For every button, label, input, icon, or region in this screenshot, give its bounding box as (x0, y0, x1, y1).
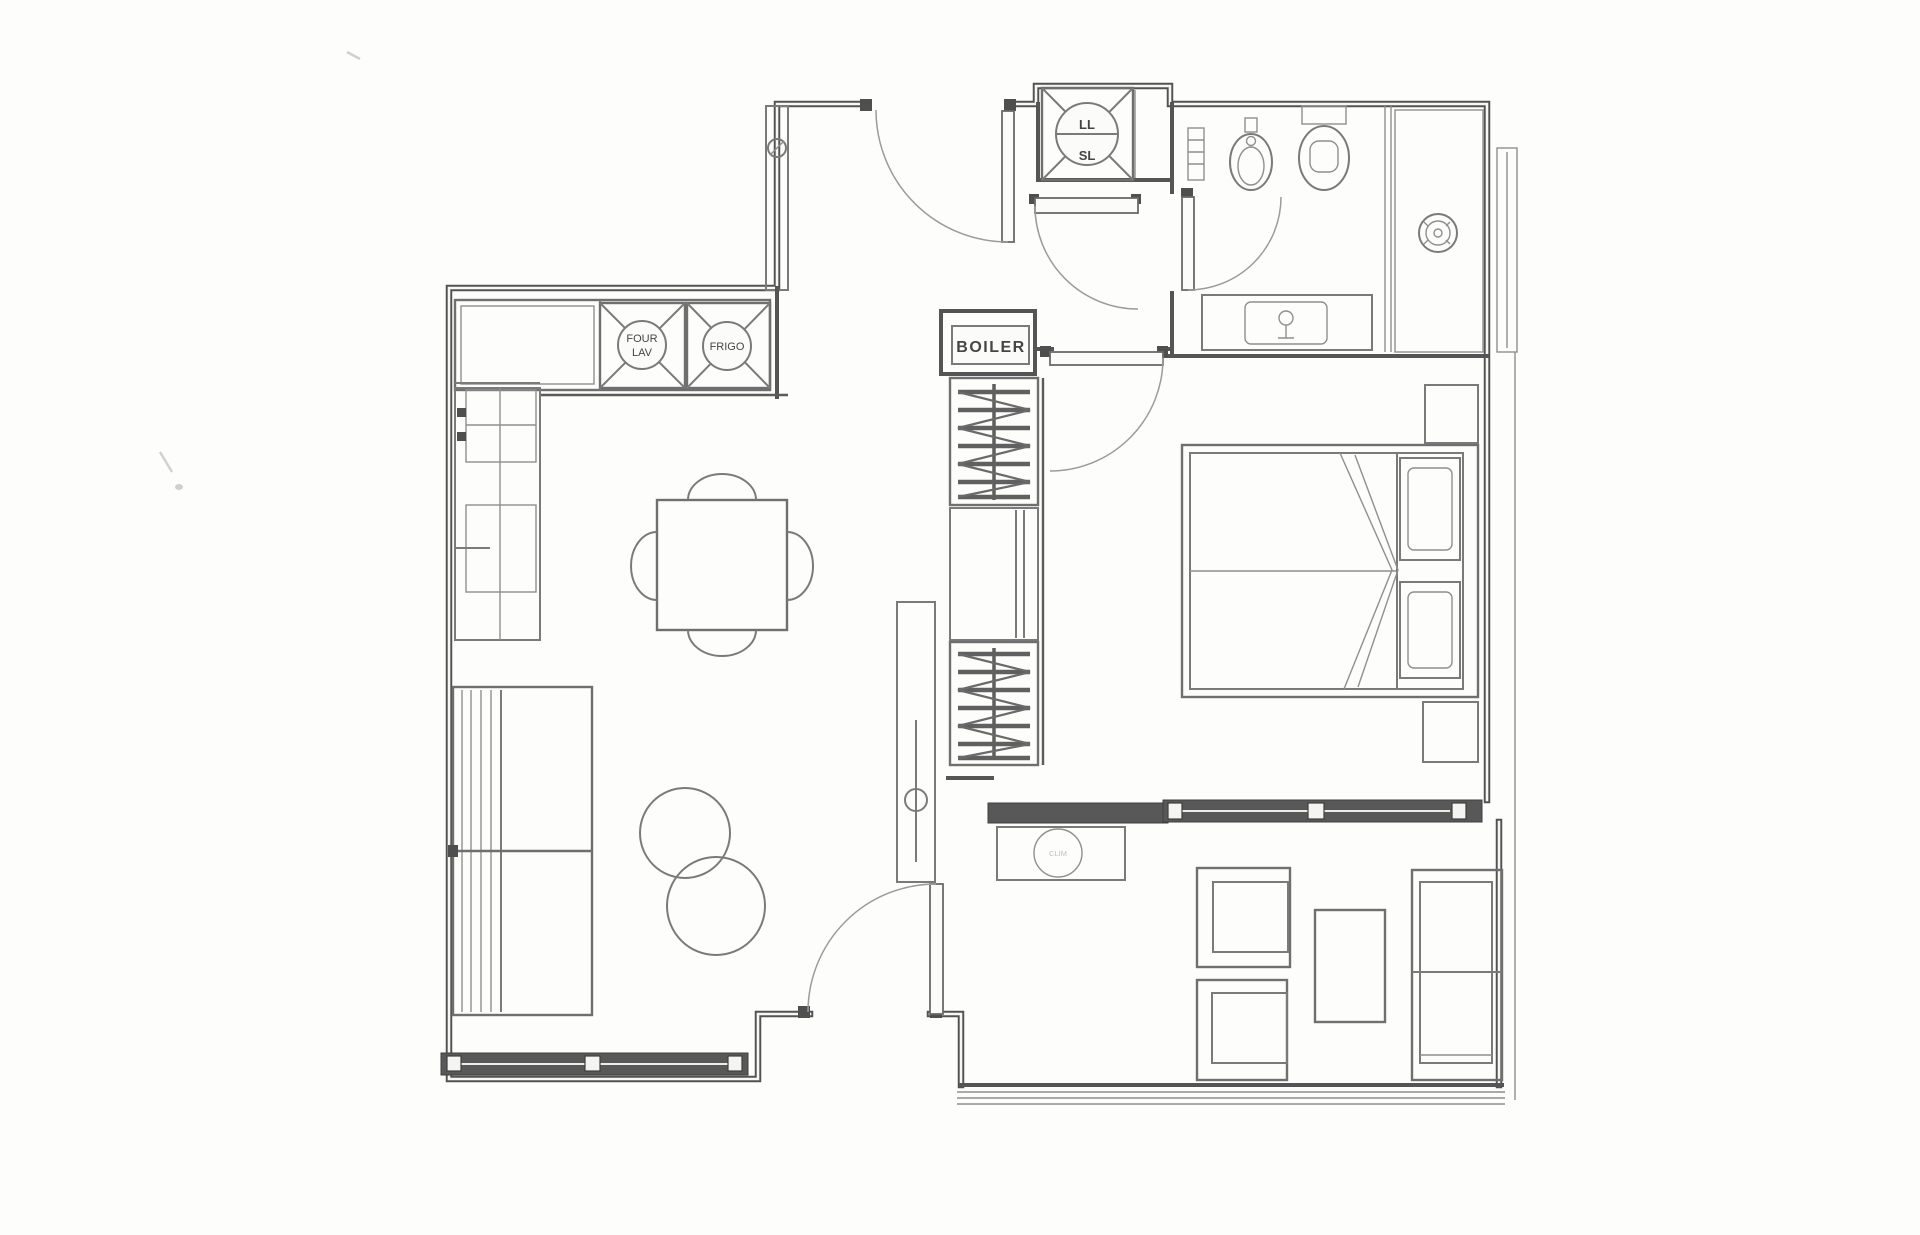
dining-table (657, 500, 787, 630)
dining-chair-bottom (688, 630, 756, 656)
floorplan-scan-page: FOUR LAV FRIGO (0, 0, 1920, 1235)
boiler-closet: BOILER (941, 311, 1035, 374)
living-room-window (441, 1053, 748, 1075)
sofa (448, 687, 592, 1015)
toilet (1299, 106, 1349, 190)
boiler-label: BOILER (956, 339, 1025, 356)
nightstand-bottom (1423, 702, 1478, 762)
fridge-unit: FRIGO (687, 303, 770, 388)
wardrobe-top (950, 378, 1038, 505)
kitchen-sink (457, 390, 536, 462)
terrace-lounger (1412, 870, 1502, 1080)
kitchen-side-counter (455, 383, 540, 640)
shower (1395, 110, 1483, 352)
bathroom-door (1181, 188, 1281, 290)
dining-chair-left (631, 532, 657, 600)
bedroom-door (1040, 346, 1168, 471)
exterior-walls (449, 86, 1499, 1085)
towel-radiator (1188, 128, 1204, 180)
wardrobe-bottom (950, 642, 1038, 765)
coffee-table-round-1 (640, 788, 730, 878)
washer-dryer-unit: LL SL (1042, 88, 1133, 180)
dining-chair-top (688, 474, 756, 500)
floor-plan-svg: FOUR LAV FRIGO (0, 0, 1920, 1235)
oven-dishwasher-label-line1: FOUR (626, 333, 657, 345)
fridge-label: FRIGO (710, 341, 745, 353)
terrace-table (1315, 910, 1385, 1022)
bedroom-window (988, 800, 1482, 823)
double-bed (1182, 445, 1478, 697)
dining-chairs (631, 474, 813, 656)
washer-label: LL (1079, 117, 1095, 132)
kitchen-base-cabinet (455, 505, 536, 592)
ac-unit-label: CLIM (1049, 849, 1067, 858)
linen-cabinet (950, 508, 1038, 640)
bidet (1230, 118, 1272, 190)
dining-chair-right (787, 532, 813, 600)
living-room-door (798, 884, 943, 1018)
scan-artifact (160, 52, 360, 490)
pillow-bottom (1400, 582, 1460, 678)
oven-dishwasher-label-line2: LAV (632, 347, 653, 359)
terrace-armchair-1 (1197, 868, 1290, 967)
vanity-sink (1202, 295, 1372, 350)
dryer-label: SL (1079, 148, 1096, 163)
terrace-armchair-2 (1197, 980, 1287, 1080)
shower-drain (1419, 214, 1457, 252)
coffee-tables (640, 788, 765, 955)
oven-dishwasher-unit: FOUR LAV (600, 303, 685, 388)
sliding-panel (897, 602, 935, 882)
terrace-edge (957, 1085, 1505, 1104)
laundry-door (1029, 194, 1141, 309)
pillow-top (1400, 458, 1460, 560)
entry-door (768, 99, 1016, 242)
ac-unit-box: CLIM (997, 827, 1125, 880)
nightstand-top (1425, 385, 1478, 443)
coffee-table-round-2 (667, 857, 765, 955)
